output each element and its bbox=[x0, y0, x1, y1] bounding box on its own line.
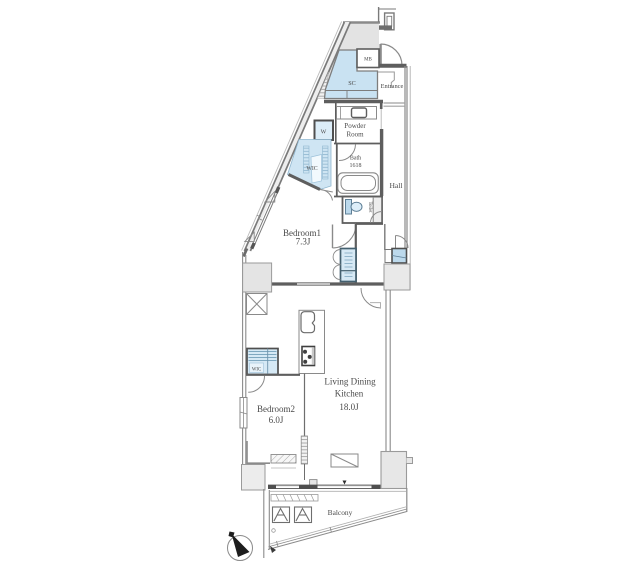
svg-text:W: W bbox=[321, 130, 327, 136]
svg-text:Bath: Bath bbox=[350, 156, 361, 162]
svg-text:Hall: Hall bbox=[389, 181, 402, 190]
svg-text:7.3J: 7.3J bbox=[296, 237, 311, 247]
svg-text:Kitchen: Kitchen bbox=[335, 389, 364, 399]
svg-text:Living Dining: Living Dining bbox=[324, 377, 376, 387]
svg-text:18.0J: 18.0J bbox=[339, 402, 359, 412]
svg-text:Room: Room bbox=[346, 131, 364, 139]
svg-text:MB: MB bbox=[364, 58, 372, 63]
svg-text:SC: SC bbox=[348, 80, 356, 87]
svg-text:6.0J: 6.0J bbox=[269, 415, 284, 425]
svg-text:Entrance: Entrance bbox=[381, 83, 404, 90]
svg-text:WIC: WIC bbox=[306, 166, 317, 172]
svg-text:Balcony: Balcony bbox=[328, 508, 353, 517]
svg-text:Toilet: Toilet bbox=[367, 201, 372, 213]
svg-text:1618: 1618 bbox=[350, 163, 362, 169]
svg-text:Powder: Powder bbox=[344, 122, 366, 130]
svg-text:WIC: WIC bbox=[252, 368, 261, 373]
svg-text:Bedroom2: Bedroom2 bbox=[257, 404, 295, 414]
